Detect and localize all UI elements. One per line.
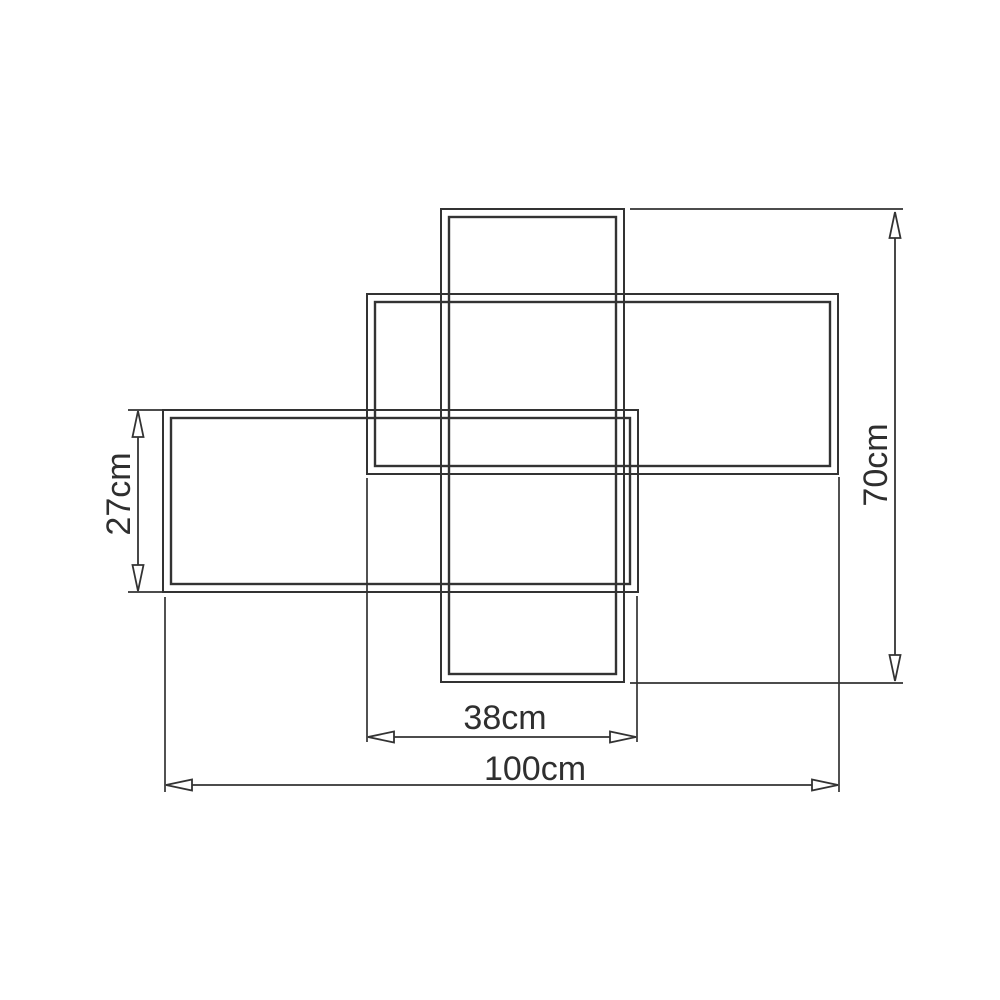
arrow-up-icon [890,212,901,238]
dim-27-label: 27cm [100,452,138,535]
arrow-left-icon [166,780,192,791]
dimension-27cm: 27cm [100,410,162,592]
dimension-drawing: 27cm 70cm 38cm 100cm [0,0,1000,1000]
dimension-70cm: 70cm [630,209,903,683]
dim-70-label: 70cm [857,423,895,506]
panel-center-vertical [441,209,624,682]
arrow-up-icon [133,411,144,437]
panel-left-inner-outline [171,418,630,584]
drawing-canvas: 27cm 70cm 38cm 100cm [0,0,1000,1000]
panel-top-right-inner-outline [375,302,830,466]
dim-100-label: 100cm [484,750,586,788]
panel-top-right [367,294,838,474]
panel-center-inner-outline [449,217,616,674]
panel-left-outer-outline [163,410,638,592]
panel-center-outer-outline [441,209,624,682]
panel-top-right-outer-outline [367,294,838,474]
arrow-down-icon [890,655,901,681]
dimension-100cm: 100cm [165,477,839,792]
arrow-right-icon [610,732,636,743]
dim-38-label: 38cm [463,699,546,737]
dimension-38cm: 38cm [367,478,637,743]
arrow-left-icon [368,732,394,743]
panel-left [163,410,638,592]
arrow-down-icon [133,565,144,591]
arrow-right-icon [812,780,838,791]
